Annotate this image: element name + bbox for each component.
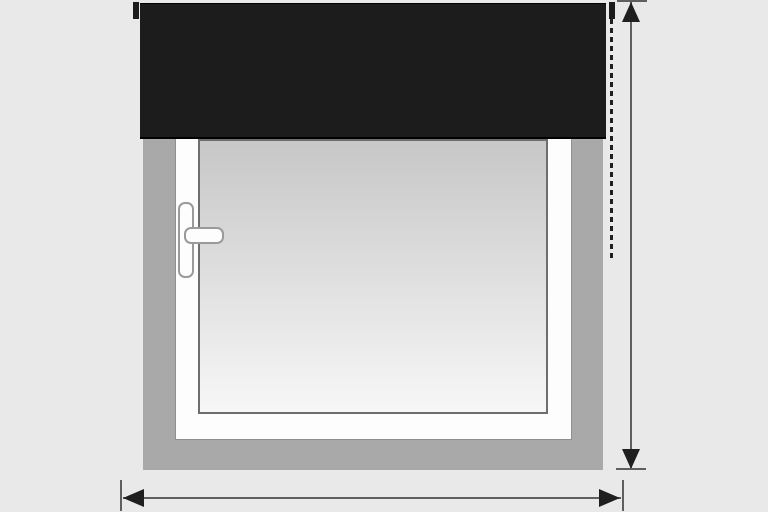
- width-dimension-arrow-right-icon: [599, 489, 620, 507]
- roller-blind: [140, 3, 606, 139]
- height-dimension-tick-bottom: [616, 468, 646, 470]
- width-dimension-tick-right: [622, 480, 624, 511]
- blind-bracket-left: [133, 2, 139, 19]
- blind-bracket-right: [609, 2, 615, 19]
- width-dimension-line: [123, 497, 621, 499]
- width-dimension-tick-left: [120, 480, 122, 511]
- height-dimension-arrow-down-icon: [622, 449, 640, 469]
- height-dimension-line: [630, 2, 632, 469]
- window-glass: [198, 139, 548, 414]
- blind-chain-dashed-line: [610, 19, 613, 258]
- window-handle-lever: [184, 227, 224, 244]
- width-dimension-arrow-left-icon: [123, 489, 144, 507]
- height-dimension-arrow-up-icon: [622, 2, 640, 22]
- blind-measurement-diagram: [0, 0, 768, 512]
